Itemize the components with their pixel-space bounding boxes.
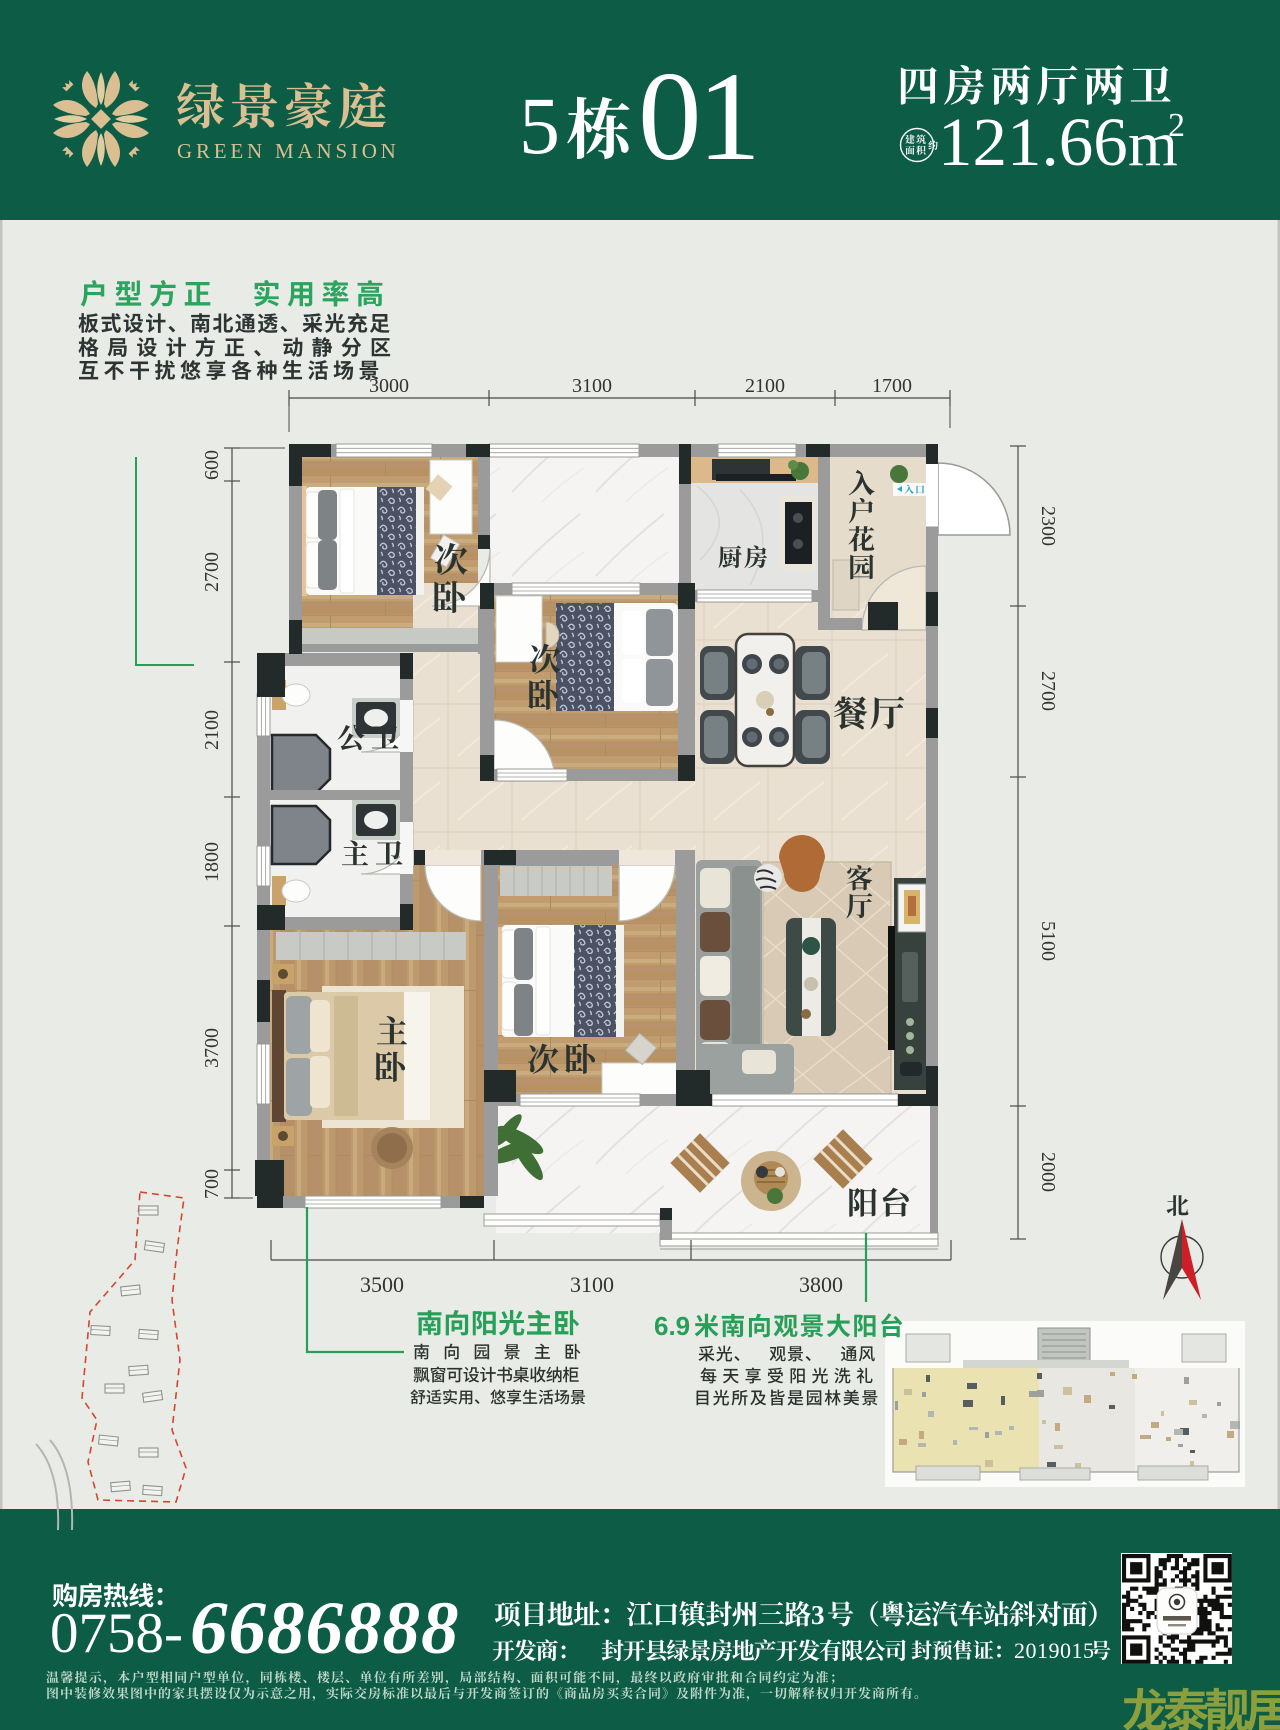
svg-text:2100: 2100 bbox=[201, 710, 223, 750]
svg-text:01: 01 bbox=[638, 47, 757, 187]
svg-text:6.9: 6.9 bbox=[654, 1311, 690, 1341]
svg-text:3100: 3100 bbox=[570, 1272, 614, 1297]
svg-text:0758-: 0758- bbox=[50, 1602, 183, 1665]
svg-text:5100: 5100 bbox=[1037, 921, 1059, 961]
svg-text:700: 700 bbox=[201, 1169, 223, 1199]
svg-text:6686888: 6686888 bbox=[190, 1587, 460, 1670]
svg-text:3500: 3500 bbox=[360, 1272, 404, 1297]
svg-text:121.66: 121.66 bbox=[938, 104, 1128, 180]
svg-text:5: 5 bbox=[519, 80, 560, 171]
svg-text:3000: 3000 bbox=[369, 375, 409, 397]
svg-text:3800: 3800 bbox=[799, 1272, 843, 1297]
svg-text:2300: 2300 bbox=[1037, 506, 1059, 546]
svg-text:2700: 2700 bbox=[1037, 671, 1059, 711]
svg-text:2: 2 bbox=[1168, 107, 1185, 144]
svg-text:1700: 1700 bbox=[872, 375, 912, 397]
svg-text:2019015: 2019015 bbox=[1014, 1638, 1095, 1663]
svg-text:2700: 2700 bbox=[201, 552, 223, 592]
svg-text:3100: 3100 bbox=[572, 375, 612, 397]
svg-text:2000: 2000 bbox=[1037, 1152, 1059, 1192]
svg-text:3: 3 bbox=[811, 1600, 825, 1630]
svg-text:1800: 1800 bbox=[201, 842, 223, 882]
svg-text:600: 600 bbox=[201, 450, 223, 480]
svg-text:GREEN MANSION: GREEN MANSION bbox=[177, 139, 400, 163]
svg-text:2100: 2100 bbox=[745, 375, 785, 397]
svg-text:3700: 3700 bbox=[201, 1028, 223, 1068]
